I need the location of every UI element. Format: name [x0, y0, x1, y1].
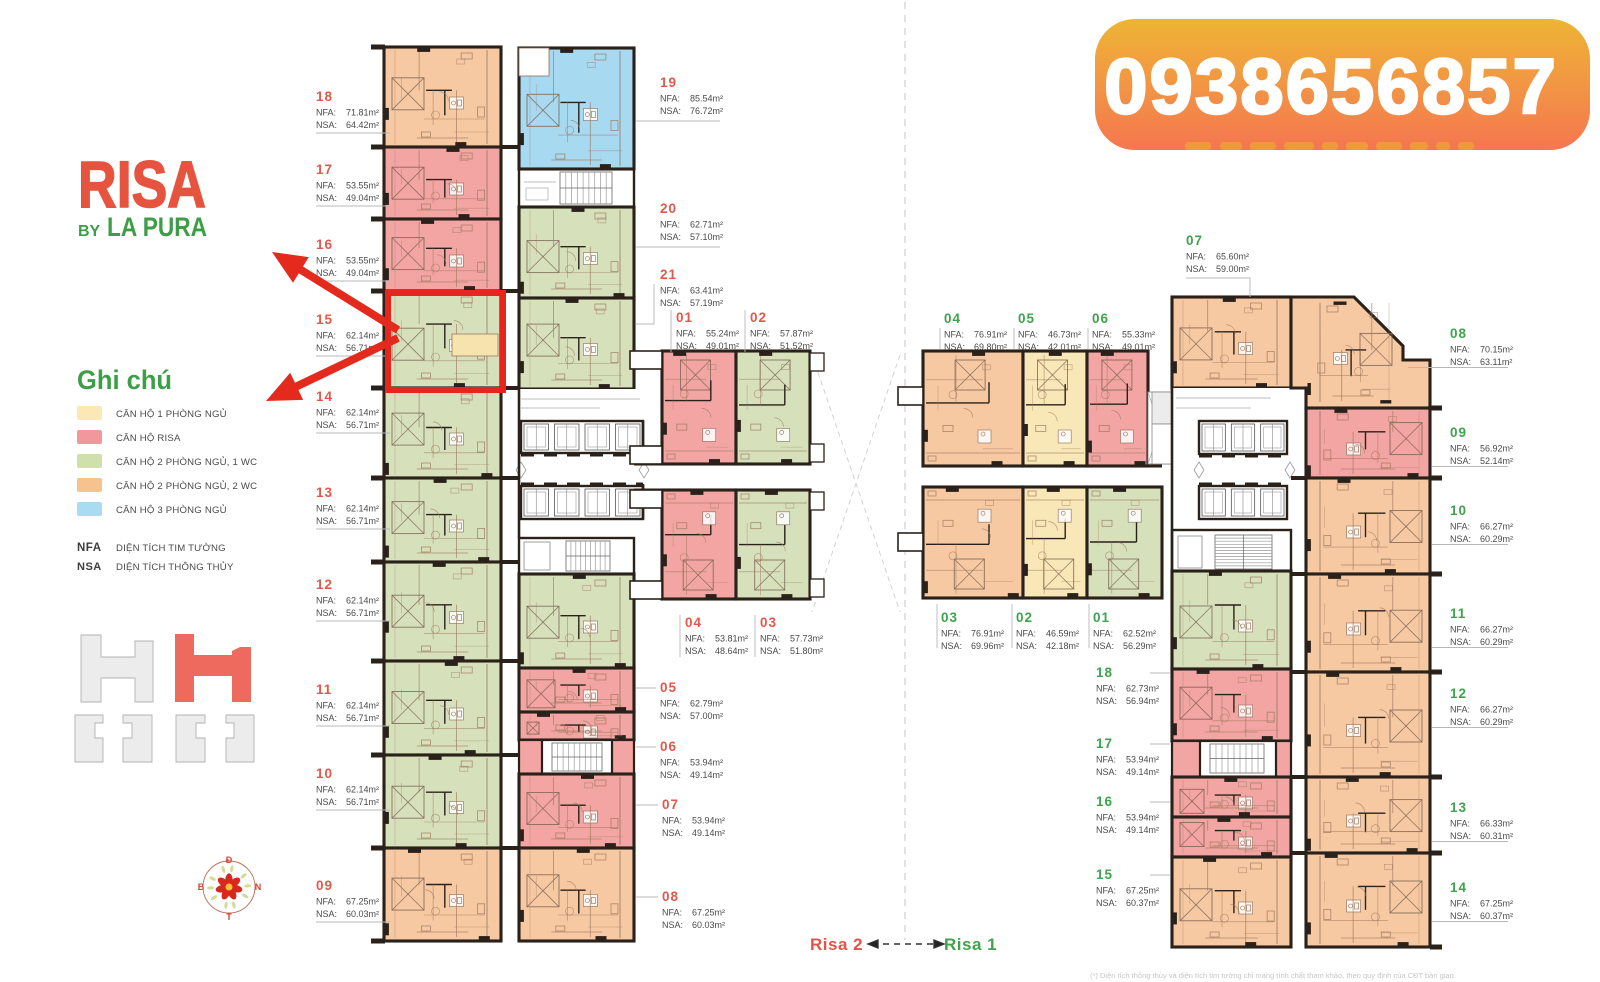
- svg-text:62.79m²: 62.79m²: [690, 699, 723, 709]
- svg-text:60.37m²: 60.37m²: [1126, 898, 1159, 908]
- svg-text:NFA:: NFA:: [316, 256, 336, 266]
- svg-text:17: 17: [316, 162, 333, 177]
- svg-text:62.14m²: 62.14m²: [346, 504, 379, 514]
- svg-text:76.91m²: 76.91m²: [974, 330, 1007, 340]
- svg-text:NSA:: NSA:: [750, 341, 771, 351]
- svg-text:49.14m²: 49.14m²: [692, 828, 725, 838]
- svg-text:66.27m²: 66.27m²: [1480, 625, 1513, 635]
- svg-text:NFA:: NFA:: [941, 629, 961, 639]
- svg-text:NSA:: NSA:: [662, 920, 683, 930]
- svg-text:Đ: Đ: [226, 855, 233, 865]
- svg-text:NFA:: NFA:: [316, 701, 336, 711]
- svg-text:CĂN HỘ 2 PHÒNG NGỦ, 1 WC: CĂN HỘ 2 PHÒNG NGỦ, 1 WC: [116, 456, 257, 468]
- svg-text:57.10m²: 57.10m²: [690, 232, 723, 242]
- svg-text:NFA:: NFA:: [1186, 252, 1206, 262]
- svg-text:49.14m²: 49.14m²: [1126, 825, 1159, 835]
- svg-text:71.81m²: 71.81m²: [346, 108, 379, 118]
- svg-text:18: 18: [316, 89, 333, 104]
- svg-text:20: 20: [660, 201, 677, 216]
- svg-text:56.71m²: 56.71m²: [346, 420, 379, 430]
- svg-text:53.94m²: 53.94m²: [1126, 755, 1159, 765]
- svg-text:NFA:: NFA:: [316, 897, 336, 907]
- svg-text:NSA:: NSA:: [1186, 264, 1207, 274]
- svg-text:B: B: [198, 882, 205, 892]
- svg-text:56.92m²: 56.92m²: [1480, 444, 1513, 454]
- svg-text:BY: BY: [78, 223, 101, 240]
- svg-text:56.94m²: 56.94m²: [1126, 696, 1159, 706]
- svg-text:42.01m²: 42.01m²: [1048, 342, 1081, 352]
- svg-text:NFA:: NFA:: [660, 286, 680, 296]
- svg-text:Risa 1: Risa 1: [944, 935, 997, 954]
- svg-text:64.42m²: 64.42m²: [346, 120, 379, 130]
- svg-text:CĂN HỘ RISA: CĂN HỘ RISA: [116, 432, 181, 444]
- svg-text:17: 17: [1096, 736, 1113, 751]
- svg-text:66.33m²: 66.33m²: [1480, 819, 1513, 829]
- svg-text:07: 07: [1186, 233, 1203, 248]
- svg-text:60.37m²: 60.37m²: [1480, 911, 1513, 921]
- svg-text:NFA:: NFA:: [1450, 625, 1470, 635]
- svg-text:62.14m²: 62.14m²: [346, 331, 379, 341]
- svg-text:56.71m²: 56.71m²: [346, 797, 379, 807]
- svg-text:56.71m²: 56.71m²: [346, 516, 379, 526]
- svg-text:NSA:: NSA:: [1018, 342, 1039, 352]
- svg-text:CĂN HỘ 2 PHÒNG NGỦ, 2 WC: CĂN HỘ 2 PHÒNG NGỦ, 2 WC: [116, 480, 257, 492]
- svg-text:62.71m²: 62.71m²: [690, 220, 723, 230]
- svg-text:NFA:: NFA:: [1450, 819, 1470, 829]
- svg-text:NFA:: NFA:: [660, 94, 680, 104]
- svg-text:49.04m²: 49.04m²: [346, 193, 379, 203]
- svg-text:NSA:: NSA:: [662, 828, 683, 838]
- svg-text:19: 19: [660, 75, 677, 90]
- svg-text:NSA:: NSA:: [1096, 898, 1117, 908]
- svg-text:60.03m²: 60.03m²: [692, 920, 725, 930]
- svg-text:(*) Diện tích thông thủy và di: (*) Diện tích thông thủy và diện tích ti…: [1090, 971, 1456, 980]
- svg-text:04: 04: [944, 311, 961, 326]
- svg-text:NFA:: NFA:: [685, 634, 705, 644]
- svg-text:42.18m²: 42.18m²: [1046, 641, 1079, 651]
- svg-text:12: 12: [1450, 686, 1467, 701]
- svg-text:NSA:: NSA:: [660, 711, 681, 721]
- svg-text:10: 10: [316, 766, 333, 781]
- svg-text:67.25m²: 67.25m²: [692, 908, 725, 918]
- svg-text:63.11m²: 63.11m²: [1480, 357, 1512, 367]
- svg-text:55.24m²: 55.24m²: [706, 329, 739, 339]
- svg-text:NFA:: NFA:: [1096, 755, 1116, 765]
- svg-text:60.31m²: 60.31m²: [1480, 831, 1513, 841]
- svg-text:56.71m²: 56.71m²: [346, 608, 379, 618]
- svg-text:15: 15: [316, 312, 333, 327]
- svg-text:NFA:: NFA:: [1450, 444, 1470, 454]
- svg-text:NSA:: NSA:: [1450, 911, 1471, 921]
- svg-text:53.55m²: 53.55m²: [346, 256, 379, 266]
- svg-text:49.14m²: 49.14m²: [1126, 767, 1159, 777]
- svg-text:55.33m²: 55.33m²: [1122, 330, 1155, 340]
- svg-text:60.29m²: 60.29m²: [1480, 717, 1513, 727]
- svg-text:NFA:: NFA:: [316, 181, 336, 191]
- svg-text:NFA:: NFA:: [750, 329, 770, 339]
- svg-text:66.27m²: 66.27m²: [1480, 522, 1513, 532]
- svg-text:NFA:: NFA:: [1093, 629, 1113, 639]
- svg-text:NSA:: NSA:: [1096, 696, 1117, 706]
- svg-text:21: 21: [660, 267, 677, 282]
- svg-text:NFA:: NFA:: [1096, 886, 1116, 896]
- svg-text:76.72m²: 76.72m²: [690, 106, 723, 116]
- svg-text:NSA:: NSA:: [1092, 342, 1113, 352]
- svg-text:48.64m²: 48.64m²: [715, 646, 748, 656]
- svg-text:03: 03: [760, 615, 777, 630]
- svg-text:NFA:: NFA:: [944, 330, 964, 340]
- svg-text:NFA:: NFA:: [1018, 330, 1038, 340]
- svg-text:NSA:: NSA:: [944, 342, 965, 352]
- svg-text:NSA:: NSA:: [1450, 831, 1471, 841]
- svg-text:NSA:: NSA:: [660, 298, 681, 308]
- svg-text:66.27m²: 66.27m²: [1480, 705, 1513, 715]
- svg-text:NFA:: NFA:: [316, 108, 336, 118]
- svg-text:0938656857: 0938656857: [1104, 42, 1558, 130]
- svg-text:69.80m²: 69.80m²: [974, 342, 1007, 352]
- svg-text:NSA:: NSA:: [316, 713, 337, 723]
- svg-text:62.52m²: 62.52m²: [1123, 629, 1156, 639]
- svg-text:49.04m²: 49.04m²: [346, 268, 379, 278]
- svg-text:05: 05: [1018, 311, 1035, 326]
- svg-text:NFA:: NFA:: [660, 699, 680, 709]
- svg-text:57.87m²: 57.87m²: [780, 329, 813, 339]
- svg-text:62.73m²: 62.73m²: [1126, 684, 1159, 694]
- svg-text:53.94m²: 53.94m²: [692, 816, 725, 826]
- svg-text:NFA:: NFA:: [1096, 813, 1116, 823]
- svg-text:08: 08: [1450, 326, 1467, 341]
- svg-text:60.29m²: 60.29m²: [1480, 534, 1513, 544]
- svg-text:DIỆN TÍCH THÔNG THỦY: DIỆN TÍCH THÔNG THỦY: [116, 561, 234, 573]
- svg-text:62.14m²: 62.14m²: [346, 785, 379, 795]
- svg-text:NSA:: NSA:: [1450, 456, 1471, 466]
- svg-text:09: 09: [316, 878, 333, 893]
- svg-text:07: 07: [662, 797, 679, 812]
- svg-text:60.03m²: 60.03m²: [346, 909, 379, 919]
- svg-text:NSA: NSA: [77, 561, 102, 573]
- svg-text:56.71m²: 56.71m²: [346, 713, 379, 723]
- svg-text:NFA:: NFA:: [316, 596, 336, 606]
- svg-text:59.00m²: 59.00m²: [1216, 264, 1249, 274]
- svg-text:NSA:: NSA:: [660, 770, 681, 780]
- svg-text:52.14m²: 52.14m²: [1480, 456, 1513, 466]
- svg-text:62.14m²: 62.14m²: [346, 408, 379, 418]
- svg-text:53.94m²: 53.94m²: [1126, 813, 1159, 823]
- svg-text:NSA:: NSA:: [1450, 534, 1471, 544]
- svg-text:06: 06: [1092, 311, 1109, 326]
- svg-text:NFA:: NFA:: [1092, 330, 1112, 340]
- svg-text:NSA:: NSA:: [941, 641, 962, 651]
- svg-text:NFA:: NFA:: [1450, 899, 1470, 909]
- svg-text:NSA:: NSA:: [316, 608, 337, 618]
- svg-text:NFA:: NFA:: [1096, 684, 1116, 694]
- svg-text:NSA:: NSA:: [316, 516, 337, 526]
- svg-text:04: 04: [685, 615, 702, 630]
- svg-text:NFA:: NFA:: [1450, 705, 1470, 715]
- svg-text:CĂN HỘ 3 PHÒNG NGỦ: CĂN HỘ 3 PHÒNG NGỦ: [116, 504, 227, 516]
- svg-text:NSA:: NSA:: [316, 909, 337, 919]
- svg-text:Risa 2: Risa 2: [810, 935, 863, 954]
- svg-text:NFA:: NFA:: [316, 408, 336, 418]
- svg-text:51.80m²: 51.80m²: [790, 646, 823, 656]
- svg-text:18: 18: [1096, 665, 1113, 680]
- svg-text:46.59m²: 46.59m²: [1046, 629, 1079, 639]
- svg-text:NSA:: NSA:: [1450, 717, 1471, 727]
- svg-text:67.25m²: 67.25m²: [1480, 899, 1513, 909]
- svg-text:10: 10: [1450, 503, 1467, 518]
- svg-text:NSA:: NSA:: [760, 646, 781, 656]
- svg-text:NSA:: NSA:: [685, 646, 706, 656]
- svg-text:67.25m²: 67.25m²: [346, 897, 379, 907]
- svg-text:NFA:: NFA:: [662, 908, 682, 918]
- svg-text:02: 02: [750, 310, 767, 325]
- svg-text:NFA:: NFA:: [676, 329, 696, 339]
- svg-text:76.91m²: 76.91m²: [971, 629, 1004, 639]
- svg-text:02: 02: [1016, 610, 1033, 625]
- svg-text:LA PURA: LA PURA: [107, 212, 207, 242]
- svg-text:NSA:: NSA:: [316, 797, 337, 807]
- svg-text:11: 11: [316, 682, 332, 697]
- svg-text:NFA:: NFA:: [760, 634, 780, 644]
- svg-text:62.14m²: 62.14m²: [346, 701, 379, 711]
- svg-text:DIỆN TÍCH TIM TƯỜNG: DIỆN TÍCH TIM TƯỜNG: [116, 543, 226, 554]
- svg-text:NFA:: NFA:: [660, 758, 680, 768]
- svg-text:85.54m²: 85.54m²: [690, 94, 723, 104]
- svg-text:60.29m²: 60.29m²: [1480, 637, 1513, 647]
- svg-text:57.00m²: 57.00m²: [690, 711, 723, 721]
- svg-text:14: 14: [316, 389, 333, 404]
- svg-text:N: N: [255, 882, 262, 892]
- svg-text:NSA:: NSA:: [1450, 357, 1471, 367]
- svg-text:NSA:: NSA:: [1093, 641, 1114, 651]
- svg-text:14: 14: [1450, 880, 1467, 895]
- svg-text:RISA: RISA: [78, 147, 206, 221]
- svg-text:NFA:: NFA:: [316, 331, 336, 341]
- svg-text:49.14m²: 49.14m²: [690, 770, 723, 780]
- svg-text:CĂN HỘ 1 PHÒNG NGỦ: CĂN HỘ 1 PHÒNG NGỦ: [116, 408, 227, 420]
- svg-text:09: 09: [1450, 425, 1467, 440]
- svg-text:T: T: [226, 912, 232, 922]
- svg-text:51.52m²: 51.52m²: [780, 341, 813, 351]
- svg-text:67.25m²: 67.25m²: [1126, 886, 1159, 896]
- svg-text:13: 13: [1450, 800, 1467, 815]
- svg-text:NFA:: NFA:: [660, 220, 680, 230]
- svg-text:NSA:: NSA:: [316, 193, 337, 203]
- svg-text:16: 16: [316, 237, 333, 252]
- svg-text:NSA:: NSA:: [1096, 825, 1117, 835]
- svg-text:Ghi chú: Ghi chú: [77, 365, 172, 395]
- svg-text:49.01m²: 49.01m²: [706, 341, 739, 351]
- svg-text:13: 13: [316, 485, 333, 500]
- svg-text:05: 05: [660, 680, 677, 695]
- svg-text:NFA:: NFA:: [662, 816, 682, 826]
- svg-text:46.73m²: 46.73m²: [1048, 330, 1081, 340]
- svg-text:69.96m²: 69.96m²: [971, 641, 1004, 651]
- svg-text:NSA:: NSA:: [316, 420, 337, 430]
- svg-text:57.19m²: 57.19m²: [690, 298, 723, 308]
- svg-text:NSA:: NSA:: [1450, 637, 1471, 647]
- svg-text:15: 15: [1096, 867, 1113, 882]
- svg-text:NSA:: NSA:: [1016, 641, 1037, 651]
- svg-text:53.55m²: 53.55m²: [346, 181, 379, 191]
- svg-text:08: 08: [662, 889, 679, 904]
- svg-text:01: 01: [676, 310, 693, 325]
- svg-text:53.81m²: 53.81m²: [715, 634, 748, 644]
- svg-text:01: 01: [1093, 610, 1110, 625]
- svg-text:65.60m²: 65.60m²: [1216, 252, 1249, 262]
- svg-text:56.29m²: 56.29m²: [1123, 641, 1156, 651]
- svg-text:NFA:: NFA:: [316, 504, 336, 514]
- svg-text:06: 06: [660, 739, 677, 754]
- svg-text:NFA:: NFA:: [316, 785, 336, 795]
- svg-text:NFA: NFA: [77, 542, 102, 554]
- svg-text:NSA:: NSA:: [660, 232, 681, 242]
- svg-text:53.94m²: 53.94m²: [690, 758, 723, 768]
- svg-text:63.41m²: 63.41m²: [690, 286, 723, 296]
- svg-text:62.14m²: 62.14m²: [346, 596, 379, 606]
- svg-text:NSA:: NSA:: [660, 106, 681, 116]
- svg-text:NSA:: NSA:: [676, 341, 697, 351]
- svg-text:NSA:: NSA:: [316, 120, 337, 130]
- svg-text:16: 16: [1096, 794, 1113, 809]
- svg-text:NSA:: NSA:: [1096, 767, 1117, 777]
- svg-text:70.15m²: 70.15m²: [1480, 345, 1513, 355]
- svg-text:NSA:: NSA:: [316, 343, 337, 353]
- svg-text:NFA:: NFA:: [1016, 629, 1036, 639]
- svg-text:49.01m²: 49.01m²: [1122, 342, 1155, 352]
- svg-text:12: 12: [316, 577, 333, 592]
- svg-text:NFA:: NFA:: [1450, 345, 1470, 355]
- svg-text:03: 03: [941, 610, 958, 625]
- svg-text:NFA:: NFA:: [1450, 522, 1470, 532]
- svg-text:11: 11: [1450, 606, 1466, 621]
- svg-text:57.73m²: 57.73m²: [790, 634, 823, 644]
